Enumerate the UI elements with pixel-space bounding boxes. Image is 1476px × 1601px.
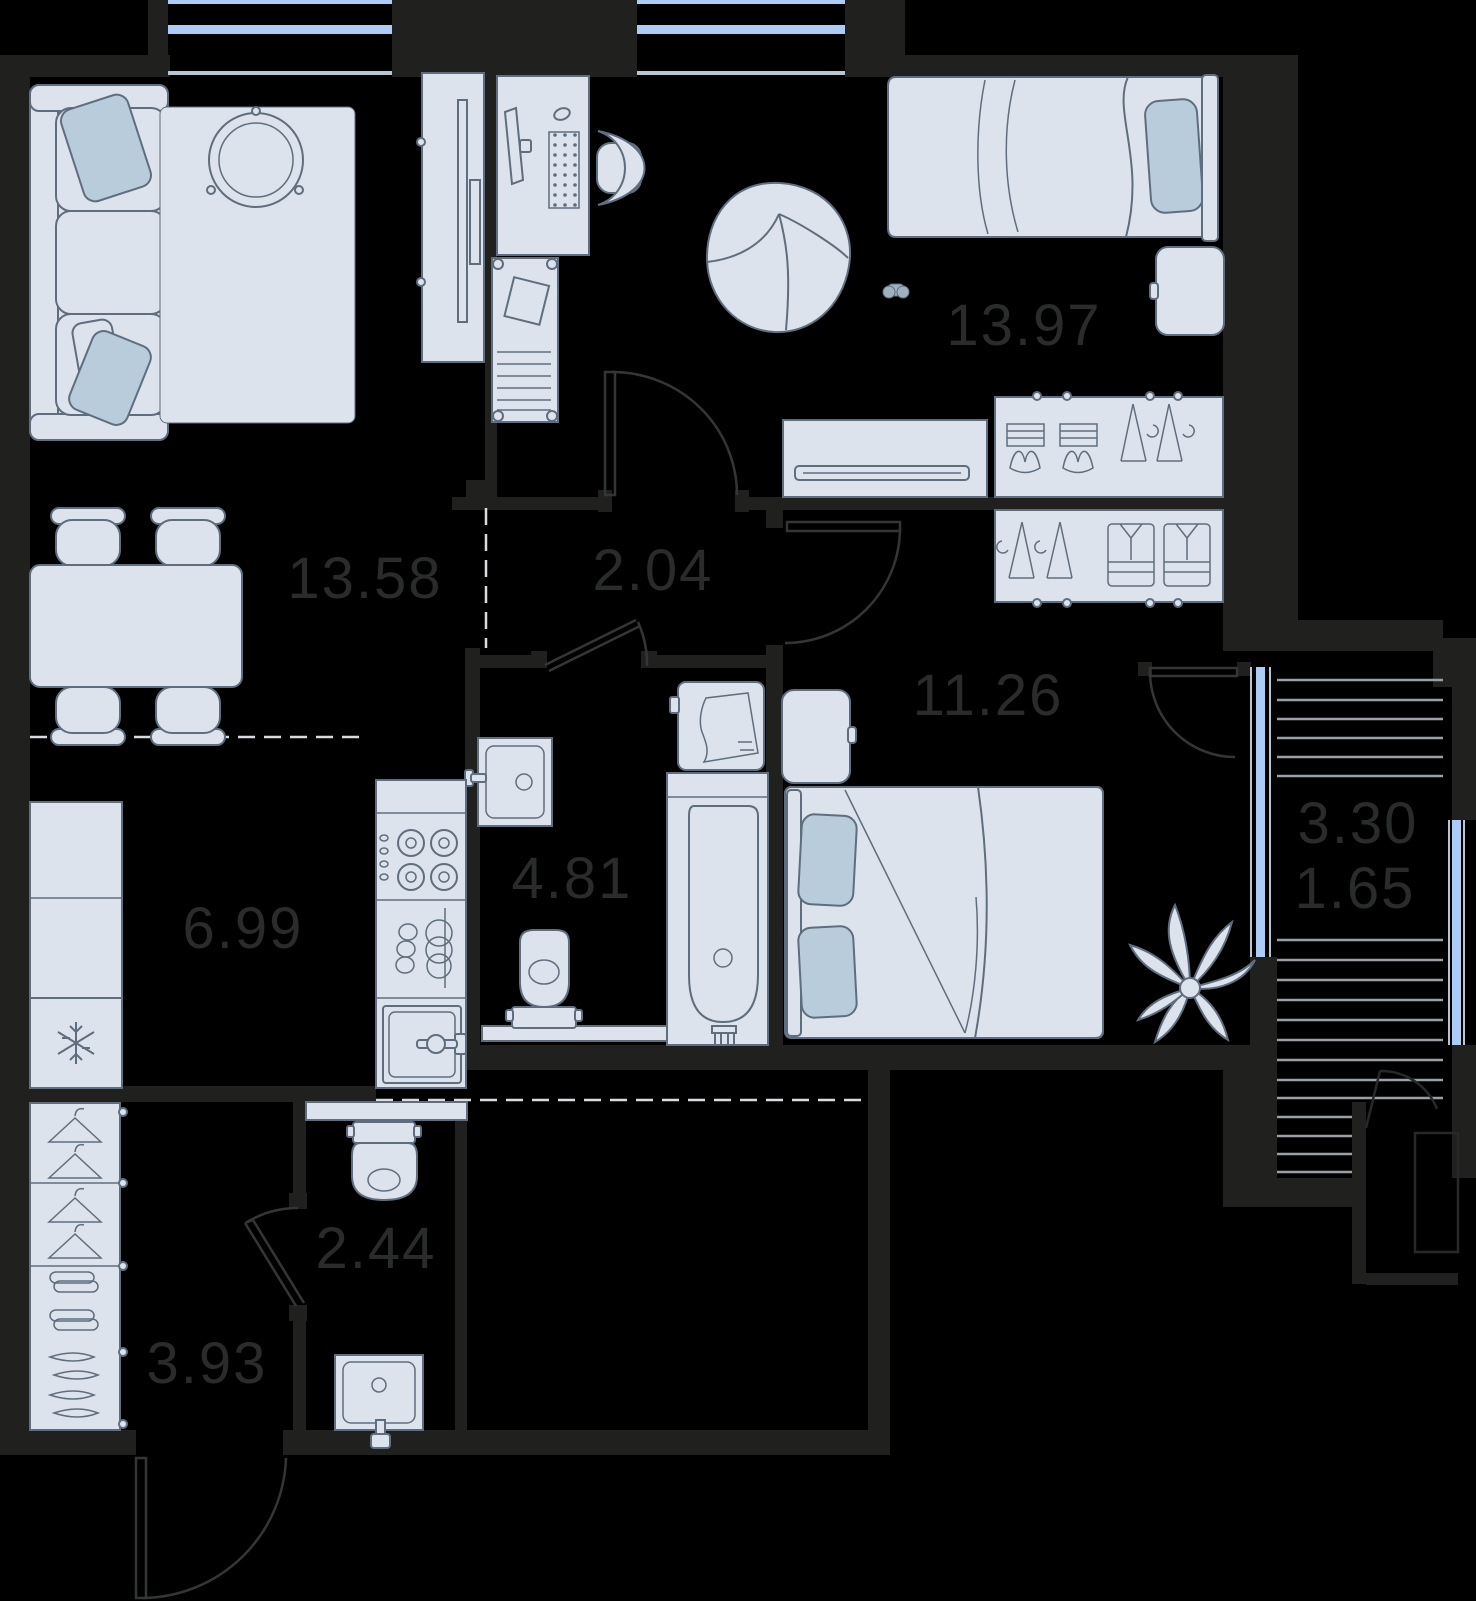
bed-pillow <box>798 926 858 1019</box>
balcony-glazing-right <box>1449 820 1464 1045</box>
single-bed <box>888 75 1218 241</box>
door-bedroom-top <box>605 372 737 495</box>
wardrobe <box>995 510 1223 607</box>
keyboard <box>549 132 579 208</box>
double-bed <box>785 787 1103 1038</box>
floor-plan-canvas: 13.58 <box>0 0 1476 1601</box>
wc-shelf <box>306 1102 467 1120</box>
area-label-kitchen: 6.99 <box>183 896 304 961</box>
fridge <box>30 998 122 1088</box>
tv-stand <box>417 73 484 362</box>
door-bedroom <box>785 522 900 643</box>
door-balcony <box>1150 668 1237 757</box>
sofa <box>30 85 168 440</box>
kitchen-sink <box>383 1006 466 1083</box>
room-entry: 3.93 <box>30 1103 267 1430</box>
room-living: 13.58 <box>30 73 484 745</box>
desk-chair <box>597 131 645 205</box>
blanket <box>975 787 1103 1038</box>
game-controller-icon <box>883 284 909 298</box>
apartment-floor-plan: 13.58 <box>0 0 1476 1601</box>
plant <box>1130 905 1255 1042</box>
door-bathroom <box>545 620 647 671</box>
area-label-bathroom: 4.81 <box>512 846 633 911</box>
desk <box>497 76 589 255</box>
washing-machine <box>670 682 764 770</box>
area-label-hall: 2.04 <box>593 538 714 603</box>
door-entrance <box>136 1458 286 1598</box>
room-bedroom: 11.26 <box>782 663 1255 1042</box>
bathroom-sink <box>465 738 552 826</box>
bed-pillow <box>1144 98 1204 213</box>
balcony: 3.30 1.65 <box>1277 680 1443 1172</box>
dining-chair <box>51 508 125 566</box>
dining-chair <box>151 508 225 566</box>
headboard <box>787 790 801 1036</box>
room-kitchen: 6.99 <box>30 780 466 1088</box>
kitchen-counter <box>30 802 122 998</box>
tv <box>458 100 467 322</box>
balcony-decking <box>1277 680 1443 1172</box>
dining-chair <box>151 687 225 745</box>
room-wc: 2.44 <box>306 1102 467 1448</box>
bean-bag-chair <box>707 183 850 332</box>
dining-chair <box>51 687 125 745</box>
area-label-living: 13.58 <box>287 546 442 611</box>
area-label-balcony-total: 3.30 <box>1298 791 1419 856</box>
area-label-bedroom-top: 13.97 <box>946 293 1101 358</box>
nightstand <box>1150 247 1224 335</box>
dining-table <box>30 565 242 687</box>
area-label-wc: 2.44 <box>316 1216 437 1281</box>
door-wc <box>245 1208 304 1306</box>
toilet <box>347 1122 421 1200</box>
area-label-balcony-counted: 1.65 <box>1295 856 1416 921</box>
hallway-wardrobe <box>30 1103 127 1430</box>
toilet <box>506 930 582 1028</box>
area-label-entry: 3.93 <box>147 1331 268 1396</box>
nightstand <box>782 690 856 783</box>
wardrobe <box>995 392 1223 497</box>
dining-table-set <box>30 508 242 745</box>
dresser <box>783 420 987 497</box>
bed-pillow <box>798 814 858 907</box>
window-bay-living <box>168 0 392 75</box>
bathtub <box>667 773 768 1045</box>
balcony-glazing-left <box>1251 667 1270 957</box>
bookshelf <box>492 258 558 422</box>
area-label-bedroom: 11.26 <box>913 663 1064 728</box>
headboard <box>1202 75 1218 241</box>
window-bay-bedroom-top <box>637 0 845 75</box>
room-bathroom: 4.81 <box>465 682 768 1045</box>
room-bedroom-top: 13.97 <box>492 75 1224 607</box>
